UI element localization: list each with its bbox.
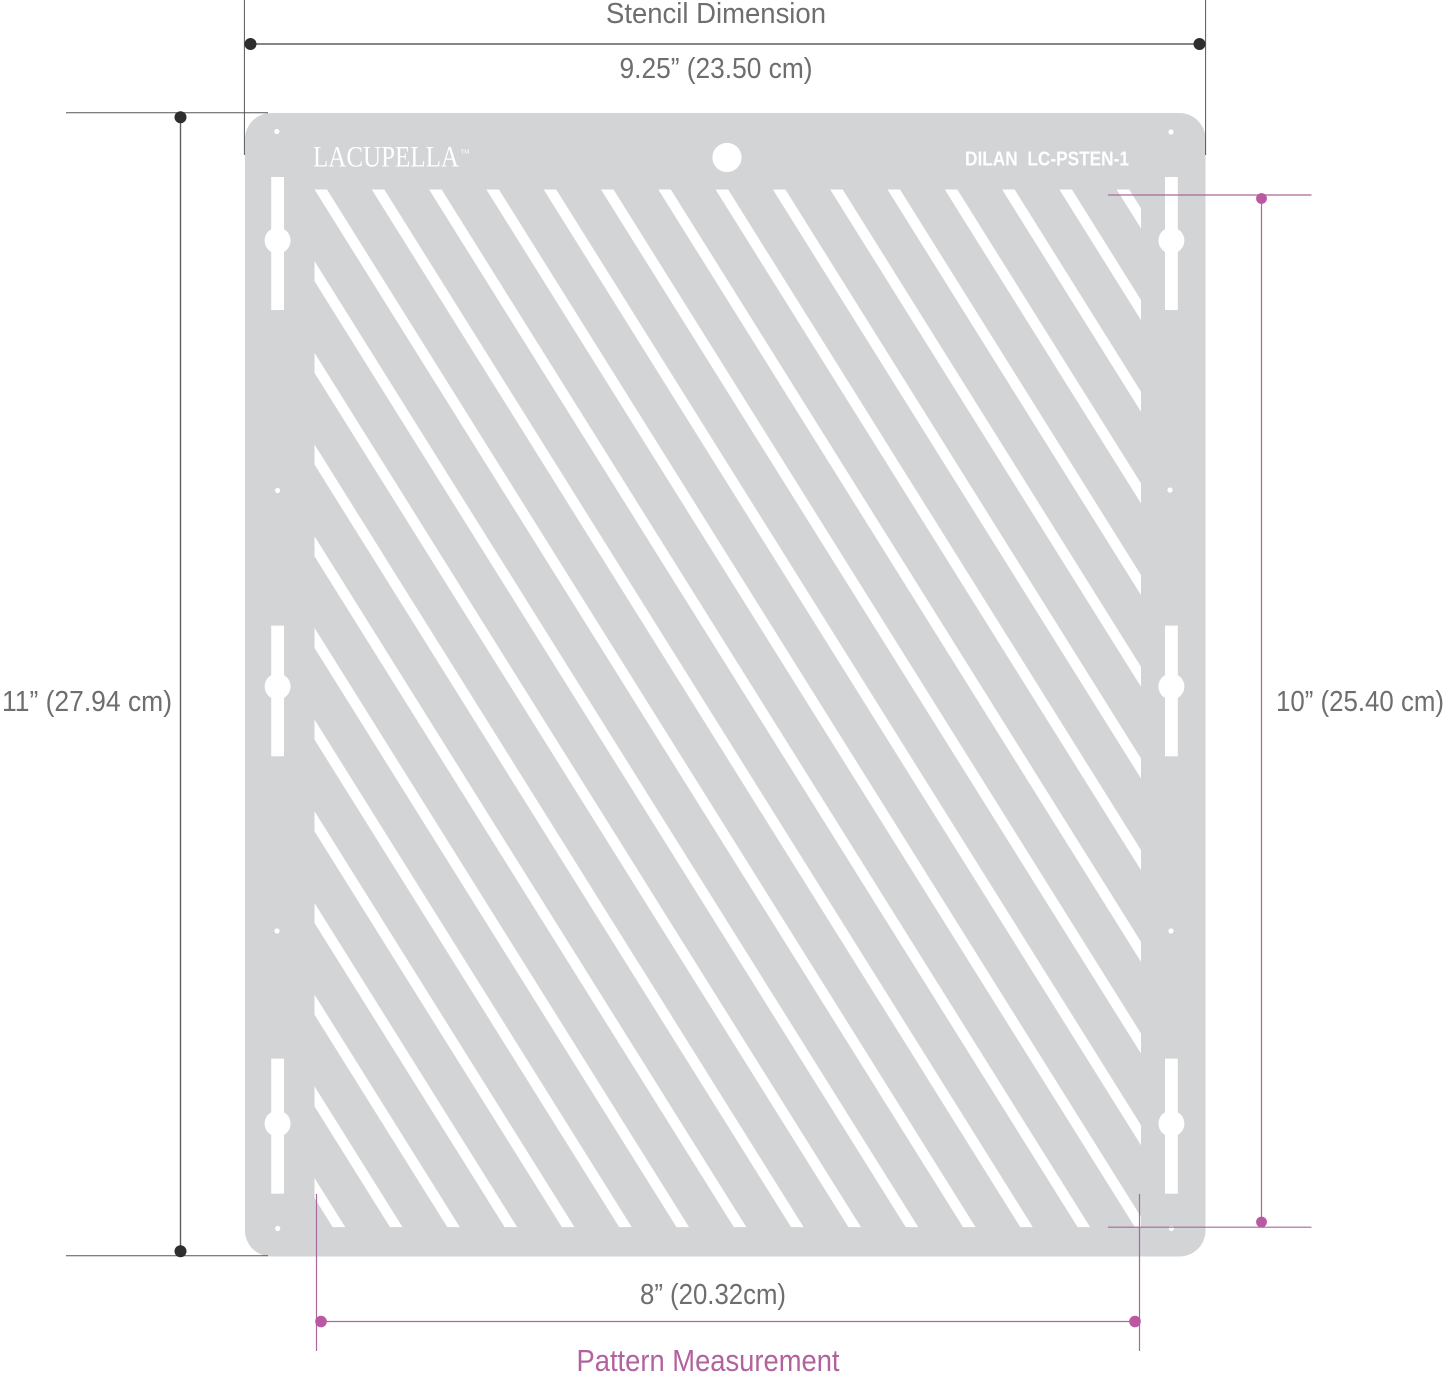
svg-text:8” (20.32cm): 8” (20.32cm) (640, 1279, 786, 1311)
svg-text:10” (25.40 cm): 10” (25.40 cm) (1276, 686, 1444, 718)
svg-text:TM: TM (461, 150, 471, 156)
svg-text:DILAN LC-PSTEN-1: DILAN LC-PSTEN-1 (965, 148, 1129, 171)
svg-text:Stencil Dimension: Stencil Dimension (606, 0, 826, 30)
svg-text:9.25” (23.50 cm): 9.25” (23.50 cm) (620, 53, 813, 85)
svg-text:11” (27.94 cm): 11” (27.94 cm) (2, 686, 172, 718)
svg-text:Pattern Measurement: Pattern Measurement (577, 1344, 840, 1373)
svg-text:LACUPELLA: LACUPELLA (313, 142, 460, 174)
